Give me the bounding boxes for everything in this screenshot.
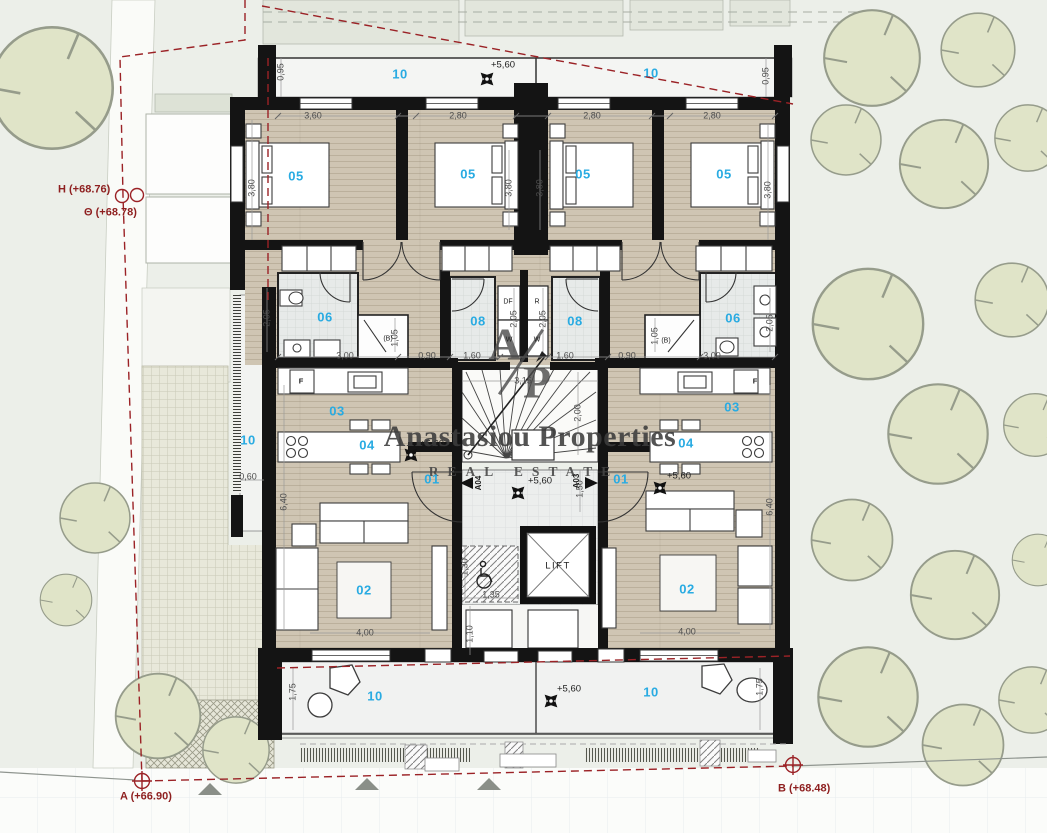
marker-theta: Θ (+68.78): [84, 208, 137, 219]
marker-h: H (+68.76): [58, 185, 110, 196]
corner-labels: H (+68.76) Θ (+68.78) A (+66.90) B (+68.…: [0, 0, 1047, 833]
floor-plan-page: 3,60 2,80 2,80 2,80 3,80 3,80 3,80 3,80 …: [0, 0, 1047, 833]
marker-a: A (+66.90): [120, 792, 172, 803]
marker-b: B (+68.48): [778, 784, 830, 795]
